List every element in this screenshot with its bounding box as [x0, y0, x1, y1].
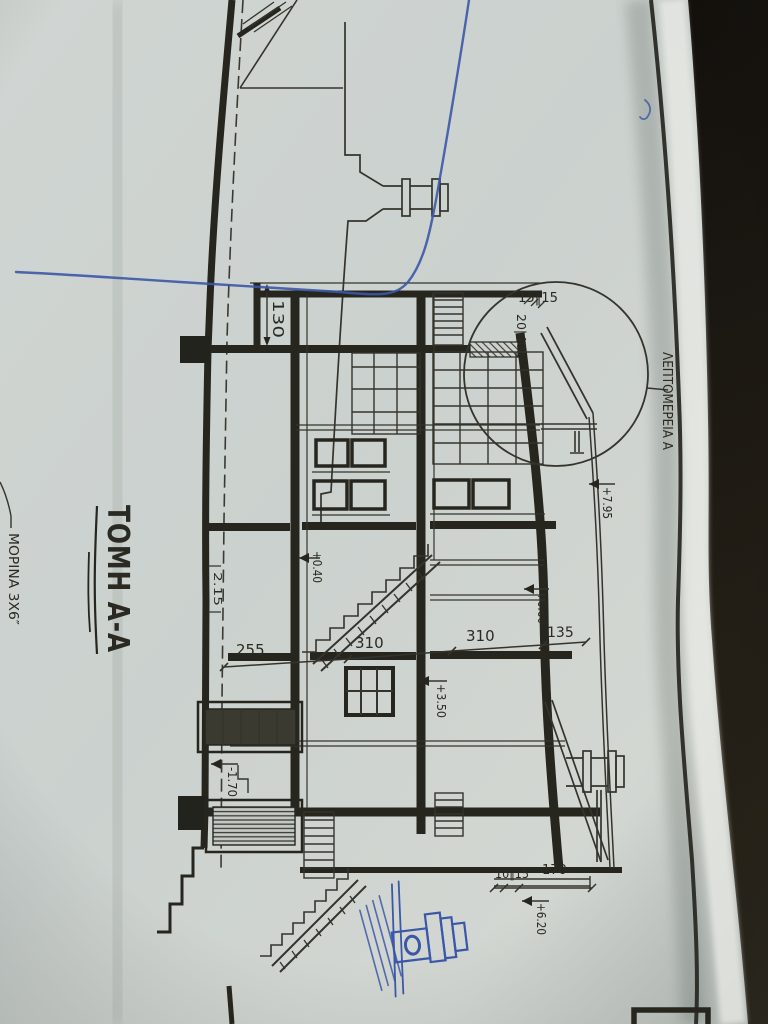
- elevation-wing-label: +6.20: [534, 903, 548, 935]
- eave-hatch: [470, 342, 518, 357]
- dim-row-label-255: 255: [236, 641, 265, 659]
- section-title: ΤΟΜΗ Α-Α: [100, 505, 135, 653]
- hatched-window-lines: [206, 800, 302, 852]
- morina-note: ΜΟΡΙΝΑ 3Χ6″: [5, 533, 20, 625]
- dim-row-label-135: 135: [547, 625, 574, 641]
- elevation-roof-main-label: +6.60: [535, 592, 549, 624]
- dim-215-label: 2.15: [211, 572, 224, 606]
- dim-row-label-310a: 310: [355, 634, 384, 652]
- footing-left-upper: [180, 336, 210, 363]
- dim-rafter-label: 20|40: [514, 314, 528, 350]
- footing-left-lower: [178, 796, 208, 830]
- dim-base-small-label: 10‖15: [495, 867, 529, 881]
- elevation-basement-label: -1.70: [225, 767, 239, 797]
- elevation-roof-top-label: +7.95: [600, 487, 614, 519]
- hatched-window-dark: [198, 702, 302, 752]
- detail-label: ΛΕΠΤΟΜΕΡΕΙΑ Α: [659, 352, 674, 450]
- dim-base-long-label: 170: [542, 863, 567, 878]
- dim-130-label: 130: [269, 300, 287, 338]
- elevation-first-label: +3.50: [434, 684, 449, 718]
- dim-eave-label: 15‖15: [518, 291, 558, 306]
- photo-of-blueprint: ΛΕΠΤΟΜΕΡΕΙΑ Α: [0, 0, 768, 1024]
- section-title-block: ΤΟΜΗ Α-Α: [88, 505, 135, 654]
- elevation-ground-label: +0.40: [310, 551, 324, 583]
- dim-row-label-310b: 310: [466, 627, 495, 645]
